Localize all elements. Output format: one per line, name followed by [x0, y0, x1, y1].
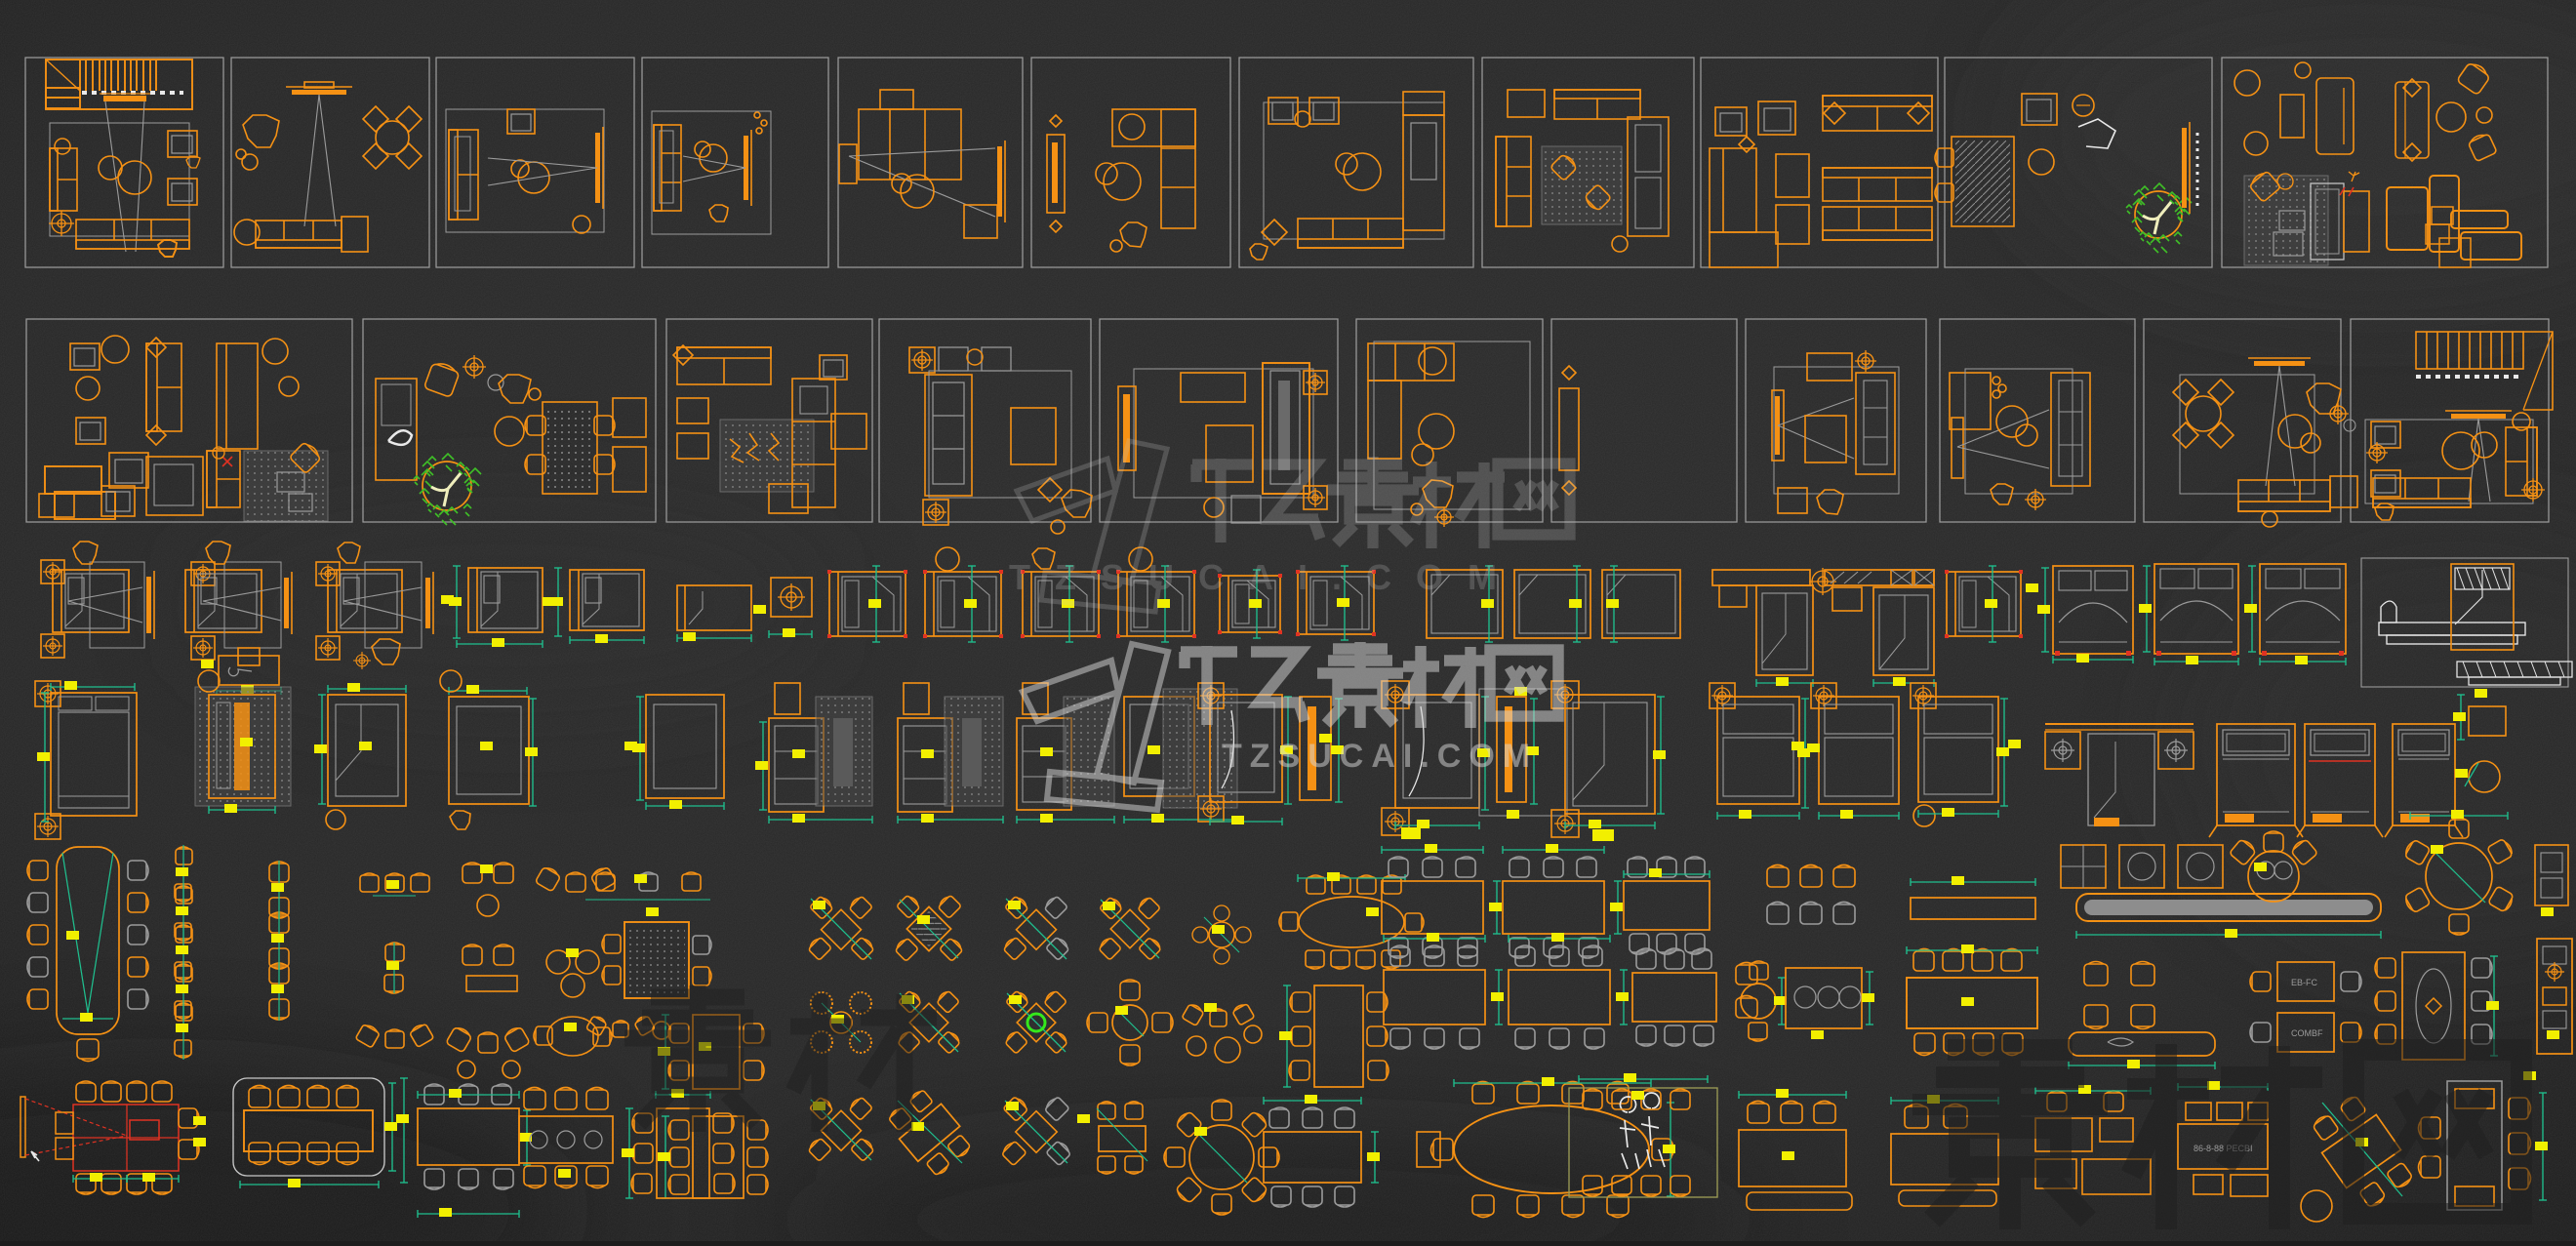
svg-text:EB-FC: EB-FC: [2291, 978, 2318, 987]
svg-text:TZSUCAI.COM: TZSUCAI.COM: [1009, 557, 1521, 597]
svg-text:COMBF: COMBF: [2291, 1028, 2323, 1038]
svg-text:TZSUCAI.COM: TZSUCAI.COM: [1222, 738, 1538, 775]
